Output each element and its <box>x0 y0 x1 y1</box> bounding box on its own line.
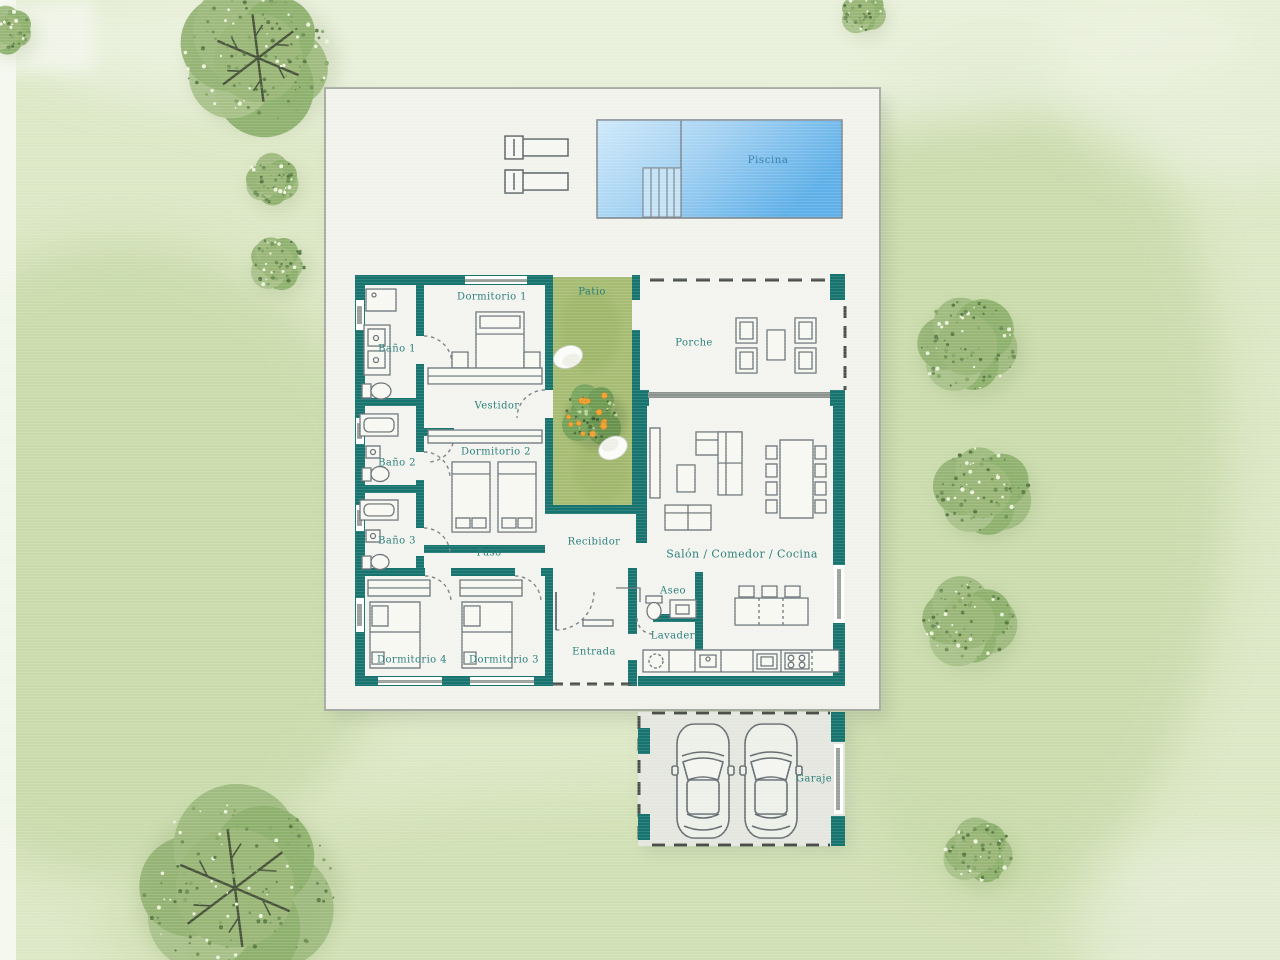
bed-single <box>452 462 490 532</box>
shower <box>366 289 396 311</box>
toilet <box>646 596 662 620</box>
pool-steps <box>643 168 681 217</box>
sink-cabinet <box>670 600 696 618</box>
patio-garden <box>550 277 632 505</box>
sofa <box>665 505 711 530</box>
wardrobe <box>368 580 430 596</box>
sink <box>366 530 380 542</box>
sun-lounger <box>505 170 568 193</box>
tv-unit <box>650 428 660 498</box>
garage-window-bar <box>836 748 840 810</box>
double-sink-vanity <box>364 325 390 375</box>
sun-lounger <box>505 136 568 159</box>
bathtub <box>360 500 398 520</box>
bed-single <box>370 602 420 668</box>
toilet <box>362 555 389 570</box>
pool <box>597 120 842 218</box>
kitchen-island <box>735 586 808 625</box>
garage <box>638 712 851 852</box>
toilet <box>362 383 391 399</box>
kitchen-counter <box>643 650 839 672</box>
bed-single <box>462 602 512 668</box>
floorplan-canvas: Piscina Patio Porche Dormitorio 1 Baño 1… <box>0 0 1280 960</box>
toilet <box>362 467 389 482</box>
car-top-view <box>740 724 802 838</box>
sink <box>366 446 380 458</box>
bench <box>583 620 613 626</box>
bed-single <box>498 462 536 532</box>
car-top-view <box>672 724 734 838</box>
coffee-table <box>677 465 695 492</box>
wardrobe <box>460 580 522 596</box>
bathtub <box>360 414 398 436</box>
